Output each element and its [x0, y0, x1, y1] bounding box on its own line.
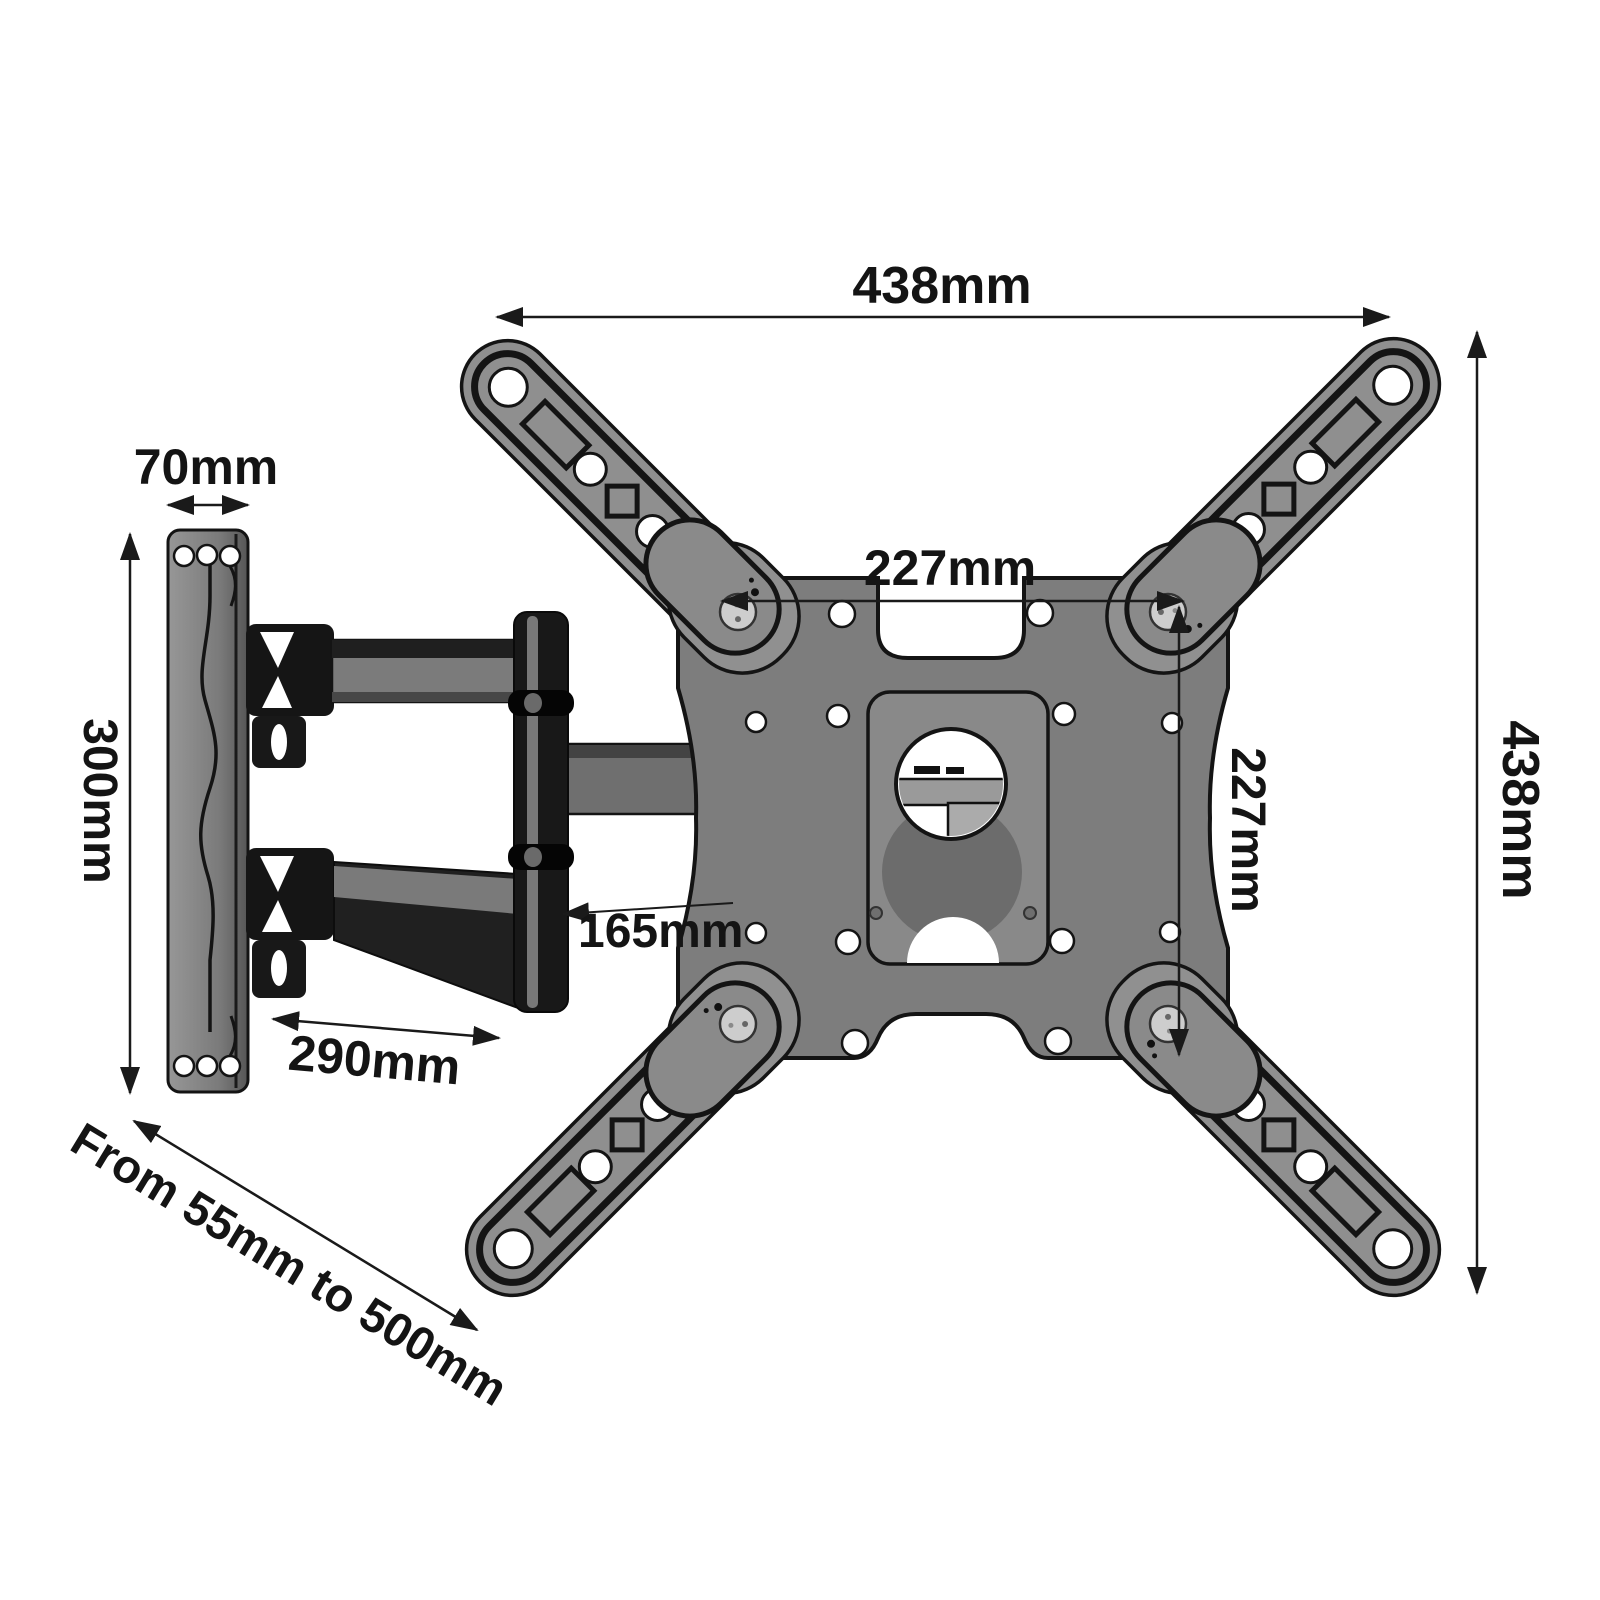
dim-arm-section: 165mm — [563, 903, 743, 958]
mount-hole — [220, 546, 240, 566]
mount-hole — [197, 545, 217, 565]
dim-arm-extension: 290mm — [273, 1019, 499, 1095]
dim-top-width: 438mm — [497, 257, 1389, 317]
dim-right-height: 438mm — [1477, 332, 1549, 1293]
dim-arm-extension-label: 290mm — [286, 1025, 463, 1096]
dim-wall-plate-height-label: 300mm — [73, 718, 126, 883]
dim-arm-section-label: 165mm — [578, 905, 743, 958]
mount-hole — [174, 546, 194, 566]
hinge-bottom — [246, 848, 334, 998]
wall-plate-group — [168, 530, 248, 1092]
dim-wall-plate-width-label: 70mm — [134, 439, 279, 495]
mount-hole — [174, 1056, 194, 1076]
dim-vesa-height-label: 227mm — [1221, 747, 1274, 912]
mount-hole — [220, 1056, 240, 1076]
mount-diagram: 438mm 438mm 70mm 300mm 227mm 227mm 165mm… — [0, 0, 1600, 1600]
dim-extension-range: From 55mm to 500mm — [62, 1112, 516, 1416]
dim-extension-range-label: From 55mm to 500mm — [62, 1112, 516, 1416]
swivel-column — [508, 612, 574, 1012]
diagram-svg: 438mm 438mm 70mm 300mm 227mm 227mm 165mm… — [0, 0, 1600, 1600]
dim-right-height-label: 438mm — [1491, 720, 1549, 899]
dim-wall-plate-width: 70mm — [134, 439, 279, 505]
hinge-top — [246, 624, 334, 768]
arm-lower — [334, 862, 518, 1008]
mount-hole — [197, 1056, 217, 1076]
dim-wall-plate-height: 300mm — [73, 534, 130, 1093]
dim-vesa-width-label: 227mm — [864, 540, 1036, 596]
arm-upper — [332, 640, 518, 702]
dim-top-width-label: 438mm — [852, 257, 1031, 315]
